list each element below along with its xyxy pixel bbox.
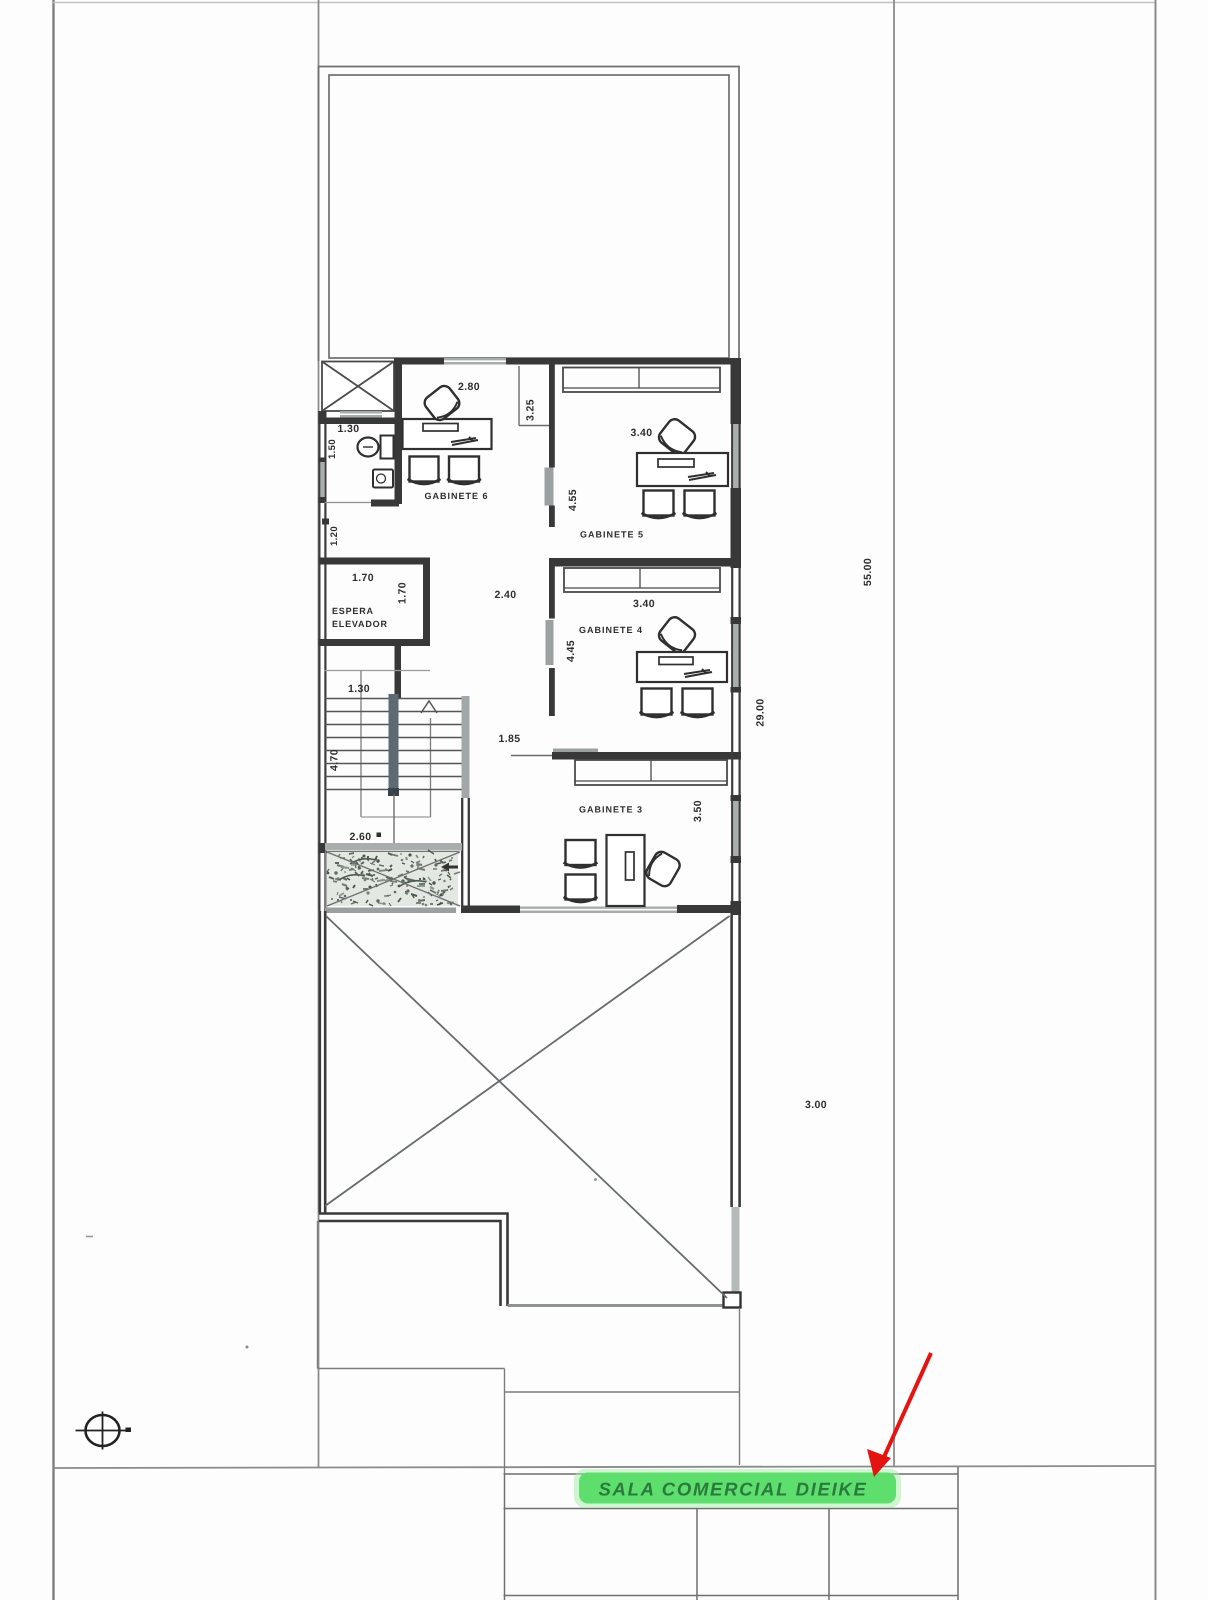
- svg-text:GABINETE 5: GABINETE 5: [580, 530, 644, 540]
- svg-text:1.20: 1.20: [329, 526, 340, 546]
- svg-text:2.40: 2.40: [494, 589, 516, 601]
- svg-text:1.70: 1.70: [352, 572, 374, 584]
- svg-text:1.70: 1.70: [397, 582, 409, 604]
- svg-text:ESPERA: ESPERA: [332, 606, 374, 616]
- svg-text:3.40: 3.40: [633, 598, 655, 610]
- svg-text:4.55: 4.55: [567, 489, 579, 511]
- svg-text:4.70: 4.70: [329, 749, 341, 771]
- svg-text:1.85: 1.85: [498, 733, 520, 745]
- svg-text:1.30: 1.30: [337, 423, 359, 435]
- svg-text:GABINETE 3: GABINETE 3: [579, 805, 643, 815]
- svg-text:3.50: 3.50: [692, 800, 704, 822]
- svg-text:2.60: 2.60: [349, 831, 371, 843]
- svg-text:2.80: 2.80: [458, 381, 480, 393]
- svg-text:SALA COMERCIAL DIEIKE: SALA COMERCIAL DIEIKE: [598, 1479, 867, 1500]
- svg-text:ELEVADOR: ELEVADOR: [332, 619, 388, 629]
- svg-text:GABINETE 6: GABINETE 6: [424, 491, 488, 501]
- svg-text:55.00: 55.00: [862, 558, 874, 586]
- svg-text:1.50: 1.50: [327, 439, 338, 459]
- svg-text:GABINETE 4: GABINETE 4: [579, 625, 643, 635]
- svg-text:4.45: 4.45: [565, 640, 577, 662]
- svg-text:3.40: 3.40: [630, 427, 652, 439]
- svg-text:29.00: 29.00: [755, 698, 767, 726]
- svg-text:1.30: 1.30: [348, 683, 370, 695]
- svg-text:3.25: 3.25: [525, 399, 537, 421]
- svg-text:3.00: 3.00: [805, 1099, 827, 1111]
